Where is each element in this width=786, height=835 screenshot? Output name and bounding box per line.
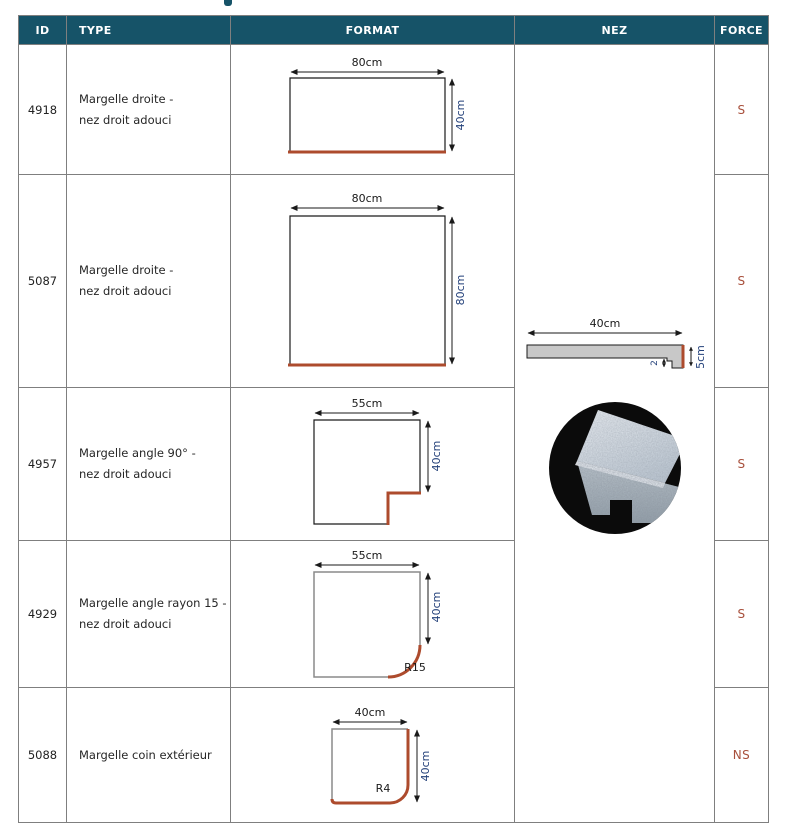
dim-label-width: 55cm xyxy=(352,549,383,562)
type-line: nez droit adouci xyxy=(79,464,230,485)
force-value: NS xyxy=(715,688,769,823)
format-diagram-4957: 55cm 40cm xyxy=(231,388,515,541)
nez-cell: 40cm 5cm 2 xyxy=(515,45,715,823)
format-diagram-cell: 55cm 40cm xyxy=(231,388,515,541)
type-value: Margelle angle 90° - nez droit adouci xyxy=(67,388,231,541)
format-diagram-cell: 40cm 40cm R4 xyxy=(231,688,515,823)
dim-label-height: 40cm xyxy=(430,441,443,472)
nez-diagram: 40cm 5cm 2 xyxy=(515,45,715,823)
dim-label-groove: 2 xyxy=(650,360,660,366)
type-line: nez droit adouci xyxy=(79,281,230,302)
dim-label-height: 40cm xyxy=(454,100,467,131)
header-cell-id: ID xyxy=(19,16,67,45)
type-value: Margelle coin extérieur xyxy=(67,688,231,823)
dim-label-height: 40cm xyxy=(430,592,443,623)
type-line: Margelle droite - xyxy=(79,89,230,110)
header-cell-force: FORCE xyxy=(715,16,769,45)
type-value: Margelle angle rayon 15 - nez droit adou… xyxy=(67,541,231,688)
dim-label-height: 80cm xyxy=(454,275,467,306)
format-diagram-cell: 80cm 40cm xyxy=(231,45,515,175)
cutoff-text-artifact xyxy=(224,0,232,6)
format-diagram-4929: 55cm 40cm R15 xyxy=(231,541,515,688)
force-value: S xyxy=(715,175,769,388)
table-row: 4918 Margelle droite - nez droit adouci … xyxy=(19,45,769,175)
header-cell-format: FORMAT xyxy=(231,16,515,45)
id-value: 5088 xyxy=(19,688,67,823)
radius-label: R15 xyxy=(404,661,426,674)
dim-label-height: 40cm xyxy=(419,751,432,782)
type-line: nez droit adouci xyxy=(79,110,230,131)
id-value: 4929 xyxy=(19,541,67,688)
force-value: S xyxy=(715,45,769,175)
nez-edge-red xyxy=(388,493,421,525)
type-line: Margelle droite - xyxy=(79,260,230,281)
header-cell-nez: NEZ xyxy=(515,16,715,45)
id-value: 4918 xyxy=(19,45,67,175)
dim-label-width: 55cm xyxy=(352,397,383,410)
dim-label-thickness: 5cm xyxy=(694,345,707,369)
format-diagram-cell: 80cm 80cm xyxy=(231,175,515,388)
type-value: Margelle droite - nez droit adouci xyxy=(67,45,231,175)
header-row: ID TYPE FORMAT NEZ FORCE xyxy=(19,16,769,45)
type-line: Margelle angle rayon 15 - xyxy=(79,593,230,614)
type-value: Margelle droite - nez droit adouci xyxy=(67,175,231,388)
format-diagram-5088: 40cm 40cm R4 xyxy=(231,688,515,823)
dim-label-nez-width: 40cm xyxy=(590,317,621,330)
radius-label: R4 xyxy=(376,782,391,795)
force-value: S xyxy=(715,388,769,541)
format-diagram-5087: 80cm 80cm xyxy=(231,175,515,388)
id-value: 4957 xyxy=(19,388,67,541)
type-line: nez droit adouci xyxy=(79,614,230,635)
product-table: ID TYPE FORMAT NEZ FORCE 4918 Margelle d… xyxy=(18,15,769,823)
dim-label-width: 40cm xyxy=(355,706,386,719)
type-line: Margelle coin extérieur xyxy=(79,745,230,766)
dim-label-width: 80cm xyxy=(352,56,383,69)
force-value: S xyxy=(715,541,769,688)
format-diagram-cell: 55cm 40cm R15 xyxy=(231,541,515,688)
header-cell-type: TYPE xyxy=(67,16,231,45)
dim-label-width: 80cm xyxy=(352,192,383,205)
id-value: 5087 xyxy=(19,175,67,388)
format-diagram-4918: 80cm 40cm xyxy=(231,45,515,175)
type-line: Margelle angle 90° - xyxy=(79,443,230,464)
